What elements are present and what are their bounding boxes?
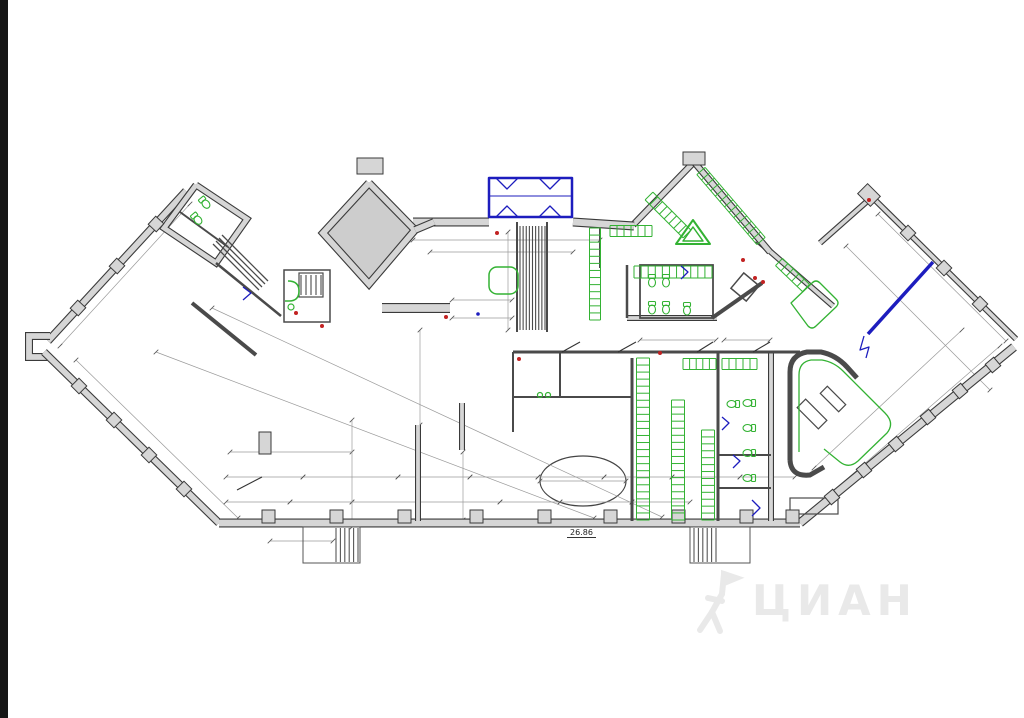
floor-plan-page: 26.86 ЦИАН [0,0,1024,718]
toilet-icon [192,214,203,225]
toilet-icon [190,212,203,226]
stair-hatch-layer [213,226,770,562]
toilet-icon [649,275,656,288]
vestibule-door [496,206,518,217]
triangle-left-wall [633,162,694,225]
cian-person-icon [694,568,746,638]
pilaster [786,510,799,523]
dimension-tick [188,202,193,207]
green-marker [288,304,294,310]
red-marker [741,258,745,262]
red-marker [658,351,662,355]
toilet-icon [743,425,756,432]
toilet-icon [684,306,691,315]
bench [797,399,827,429]
stair-box-center [690,527,750,563]
door-swing-green [285,281,299,301]
toilet-icon [743,475,756,482]
blue-marker [476,312,480,316]
watermark-text: ЦИАН [752,566,918,636]
dimension-tick [960,328,965,333]
stair-box-left [303,527,360,563]
dimension-tick [58,344,63,349]
dimension-line [212,308,662,517]
toilet-icon [200,198,211,209]
toilet-icon [649,305,656,314]
toilet-icon [649,278,656,287]
toilet-icon [663,278,670,287]
red-marker [495,231,499,235]
shelving-rack-rung [645,192,653,200]
toilet-icon [743,400,752,407]
vestibule-door [539,206,561,217]
pilaster [538,510,551,523]
red-marker [761,280,765,284]
bench [820,386,845,411]
column [259,432,271,454]
dimension-line [60,204,190,346]
toilet-icon [743,475,752,482]
shelving-rack-rung [674,221,682,229]
toilet-icon [727,401,740,408]
toilet-icon [663,275,670,288]
dimension-line [878,214,1006,341]
hook-green-echo [799,360,891,465]
toilet-icon [649,302,656,315]
blocks-layer [70,152,1001,563]
toilet-icon [727,401,736,408]
pilaster [262,510,275,523]
area-label: 26.86 [567,528,596,538]
blue-door [681,266,688,279]
corridor-stair-line [219,238,265,284]
cian-person-icon-strokes [700,574,736,631]
diamond-top-block [357,158,383,174]
dimension-tick [154,350,159,355]
right-wing-top-left-edge [820,197,872,243]
pilaster [470,510,483,523]
green-portal [489,267,518,294]
gray-room-fill [327,187,411,280]
green-fixtures-layer [190,167,890,520]
toilet-icon [684,303,691,316]
red-marker [517,357,521,361]
dimension-line [846,246,990,390]
cian-watermark: ЦИАН [694,566,918,638]
red-marker [294,311,298,315]
hook-wall-bottom [790,460,824,475]
vestibule-door [539,178,561,189]
red-marker [753,276,757,280]
shelving-rack-rung [664,211,672,219]
blue-door [733,455,740,468]
pilaster [330,510,343,523]
red-marker [867,198,871,202]
passage-lower-wall [712,283,762,318]
toilet-icon [743,400,756,407]
blue-door [860,336,869,358]
dimension-line [76,360,238,518]
shelving-rack-rung [659,206,667,214]
toilet-icon [663,302,670,315]
shelving-rack-rung [669,216,677,224]
toilet-icon [663,305,670,314]
triangle-apex-block [683,152,705,165]
corridor-wall-a [192,303,256,355]
vestibule-door [496,178,518,189]
red-marker [320,324,324,328]
corridor-wall-b [216,263,281,316]
toilet-icon [743,425,752,432]
blue-door [722,417,729,430]
bottom-left-facade [44,352,219,523]
corridor-stair-line [216,241,262,287]
pilaster [740,510,753,523]
dimension-tick [998,344,1003,349]
dimension-line [156,352,594,518]
dimension-tick [210,306,215,311]
red-marker [444,315,448,319]
shelving-rack [782,258,809,284]
fills-layer [327,187,411,280]
pilaster [604,510,617,523]
pilaster [672,510,685,523]
pilaster [398,510,411,523]
door-leaf [237,477,262,490]
